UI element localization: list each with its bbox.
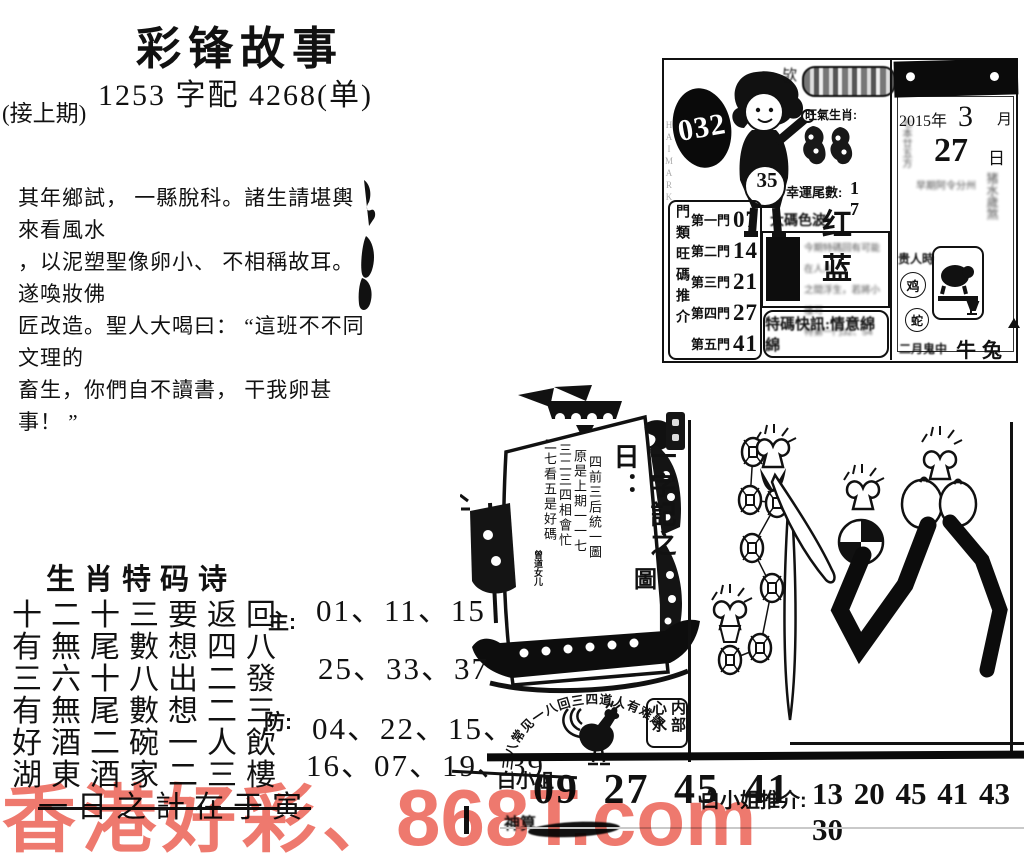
- zodiac-char: 蛇: [911, 312, 923, 329]
- calendar-month-unit: 月: [997, 108, 1012, 129]
- notice-box: 今期特碼回有可能在人八 之間浮生，若將小樓可 特第一門32、54: [761, 231, 890, 308]
- almanac-smudge: 早期阿令分州: [916, 180, 976, 194]
- continued-label: (接上期): [2, 94, 86, 128]
- door-row: 第一門 07: [691, 204, 758, 235]
- zodiac-figure-box: [932, 246, 984, 320]
- door-label: 第一門: [691, 210, 730, 229]
- door-label: 第二門: [691, 241, 730, 260]
- page-subtitle: 1253 字配 4268(单): [98, 70, 373, 114]
- zodiac-char: 鸡: [906, 276, 919, 295]
- zodiac-label: 旺氣生肖:: [805, 106, 857, 123]
- guard-picks-label: 防:: [264, 706, 292, 736]
- coins-and-crowns-illustration: [700, 420, 1010, 755]
- right-border-line: [1010, 422, 1013, 758]
- ink-streak: [356, 178, 378, 318]
- notice-black-square: [766, 237, 800, 301]
- doors-title-column: 門類旺碼推介: [673, 204, 689, 356]
- site-watermark: 香港好彩、868T.com: [2, 760, 756, 859]
- scanned-lottery-sheet: 彩锋故事 1253 字配 4268(单) (接上期) 其年鄉試， 一縣脫科。諸生…: [0, 0, 1024, 859]
- notice-line: 今期特碼回有可能在人八: [804, 238, 888, 280]
- door-row: 第二門 14: [691, 235, 758, 266]
- hanger-hole: [906, 72, 915, 81]
- calendar-month: 3: [958, 100, 973, 134]
- corner-char: 欤: [782, 64, 797, 85]
- poem-line: 有無尾數想四八: [12, 632, 311, 664]
- stamp-col: 内部: [669, 700, 685, 734]
- story-paragraph: 其年鄉試， 一縣脫科。諸生請堪輿來看風水 ，以泥塑聖像卵小、 不相稱故耳。遂喚妝…: [18, 182, 370, 438]
- door-row: 第三門 21: [691, 266, 758, 297]
- door-value: 21: [733, 269, 758, 295]
- almanac-smudge: 猪水歲煞: [984, 172, 1001, 264]
- story-line: 匠改造。聖人大喝曰： “這班不不同文理的: [18, 310, 370, 374]
- door-value: 41: [733, 331, 758, 357]
- almanac-smudge: 七本廿五方: [898, 118, 913, 208]
- issue-number: 032: [675, 107, 728, 149]
- special-news-box: 特碼快訊:情意綿綿: [763, 310, 889, 358]
- story-line: 其年鄉試， 一縣脫科。諸生請堪輿來看風水: [18, 182, 370, 246]
- boy-badge-number: 35: [752, 168, 782, 193]
- pig-figure-icon: [934, 248, 982, 318]
- main-picks-row: 25、33、37: [318, 643, 489, 688]
- calendar-bottom-zodiacs: 牛兔: [956, 334, 1008, 363]
- vertical-divider: [688, 420, 691, 762]
- zodiac-circle-snake: 蛇: [905, 308, 929, 332]
- door-label: 第五門: [691, 334, 730, 353]
- sail-answer-char: 圖: [634, 560, 657, 594]
- lottery-info-card: 032 HAIMARK 35 欤: [662, 58, 1018, 363]
- calendar-day: 27: [934, 132, 968, 170]
- calendar-day-unit: 日: [988, 144, 1005, 169]
- door-label: 第三門: [691, 272, 730, 291]
- story-line: ，以泥塑聖像卵小、 不相稱故耳。遂喚妝佛: [18, 246, 370, 310]
- scan-watermark-letters: HAIMARK: [664, 120, 674, 204]
- watermark-cn: 香港好彩: [2, 778, 322, 859]
- page-title: 彩锋故事: [136, 12, 344, 77]
- door-row: 第五門 41: [691, 328, 758, 359]
- poem-line: 十二十三要返回: [12, 600, 311, 632]
- doors-box: 門類旺碼推介 第一門 07 第二門 14 第三門 21 第四: [668, 200, 762, 360]
- noble-hours-label: 贵人時: [898, 250, 934, 267]
- zodiac-circle-rooster: 鸡: [900, 272, 926, 298]
- card-left-panel: 032 HAIMARK 35 欤: [664, 60, 890, 360]
- lucky-tail-label: 幸運尾數:: [786, 182, 842, 201]
- door-value: 07: [733, 207, 758, 233]
- hanger-hole: [990, 72, 999, 81]
- sail-main-text: 一字記之日：: [606, 443, 680, 578]
- watermark-dot: 、: [322, 778, 396, 859]
- recommend-numbers: 13 20 45 41 43 30: [812, 776, 1024, 848]
- poem-title: 生肖特码诗: [46, 556, 236, 598]
- zodiac-glyph-icons: [802, 124, 854, 168]
- stamp-col: 心水: [650, 700, 666, 734]
- calendar-hanger-bar: [894, 58, 1019, 97]
- main-picks-label: 主:: [268, 606, 296, 636]
- calendar-bottom-small: 二月鬼中: [899, 340, 947, 357]
- door-row: 第四門 27: [691, 297, 758, 328]
- scroll-cartouche: [802, 66, 896, 97]
- door-value: 27: [733, 300, 758, 326]
- watermark-site: 868T.com: [396, 773, 756, 859]
- sail-verse-column: 二七看五是好碼: [540, 437, 559, 547]
- sail-corner-box: [666, 412, 685, 450]
- story-line: 畜生，你們自不讀書， 干我卵甚事！ ”: [18, 374, 370, 438]
- sail-signature: 曾道女儿: [532, 550, 545, 592]
- special-news-text: 特碼快訊:情意綿綿: [765, 313, 887, 355]
- poem-line: 三六十八出二發: [12, 664, 311, 696]
- door-value: 14: [733, 238, 758, 264]
- calendar-panel: 2015年 3 月 27 日 七本廿五方 猪水歲煞 早期阿令分州 贵人時 鸡 蛇: [890, 60, 1022, 360]
- inner-tip-stamp: 内部 心水: [646, 698, 688, 748]
- main-picks-row: 01、11、15: [316, 585, 486, 630]
- corner-triangle: [1008, 318, 1020, 328]
- door-label: 第四門: [691, 303, 730, 322]
